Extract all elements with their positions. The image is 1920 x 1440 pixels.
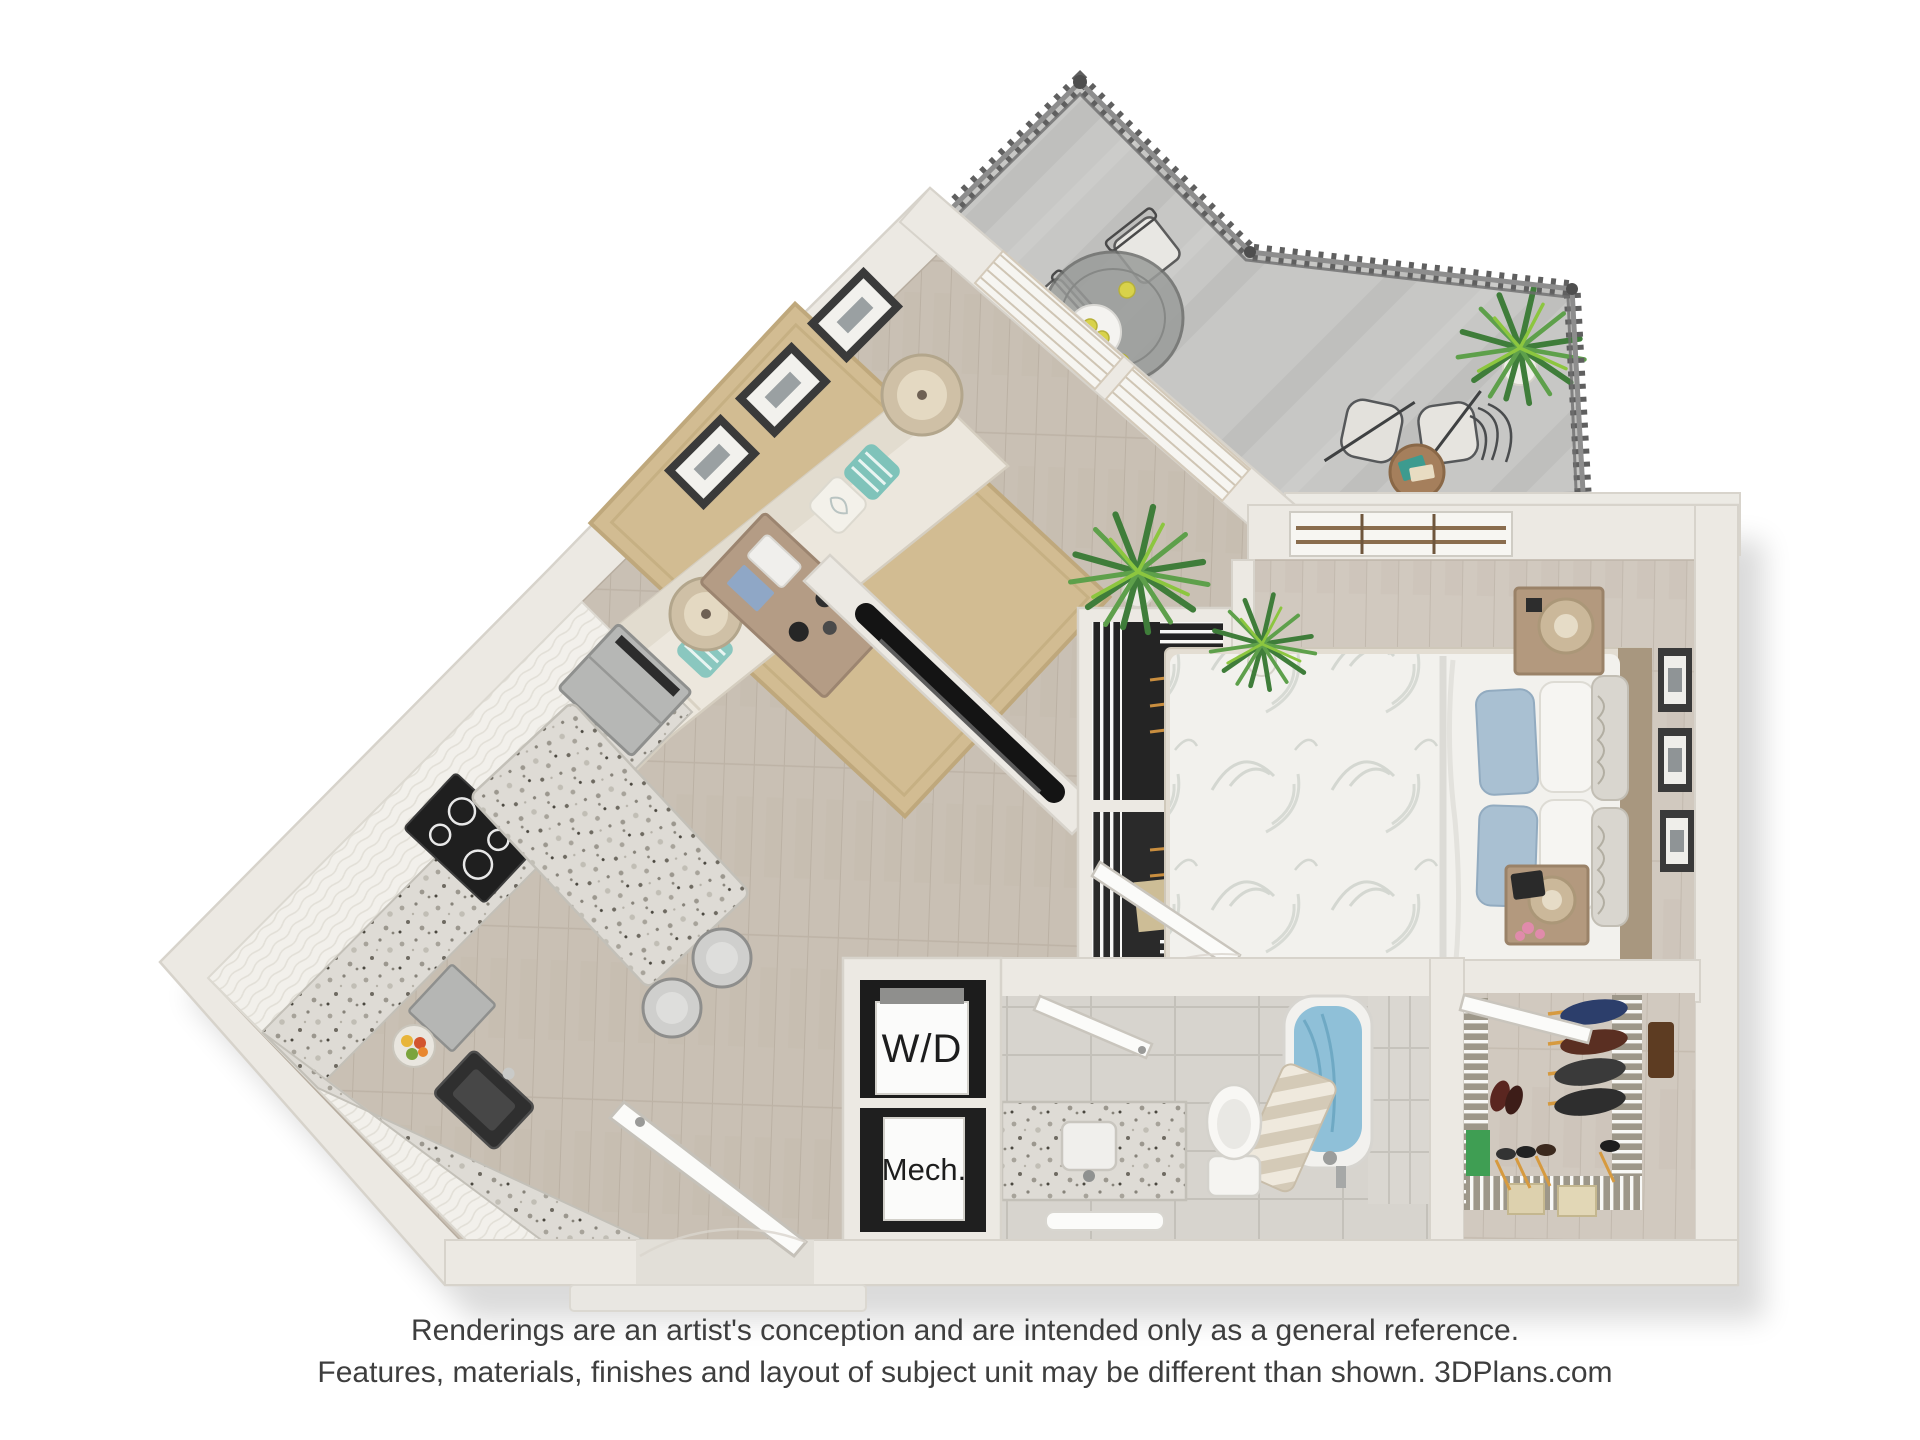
island-stool: [693, 929, 751, 987]
tablet: [1510, 870, 1545, 900]
mech-label: Mech.: [882, 1152, 966, 1187]
walk-in-closet: [1460, 993, 1695, 1242]
bedroom-window: [1290, 512, 1512, 556]
wd-label: W/D: [882, 1027, 963, 1071]
vanity-sink: [1062, 1122, 1116, 1170]
bathroom: [1000, 996, 1432, 1242]
disclaimer-line1: Renderings are an artist's conception an…: [411, 1314, 1519, 1347]
disclaimer-line2: Features, materials, finishes and layout…: [317, 1356, 1612, 1389]
toilet: [1207, 1085, 1261, 1196]
bedroom-wall-frames: [1658, 648, 1694, 872]
bath-closet-wall: [1430, 958, 1464, 1242]
nightstand: [1506, 866, 1588, 944]
floorplan-rendering: W/D Mech. Renderings are an artist's con…: [0, 0, 1920, 1440]
floor-lamp: [882, 355, 962, 435]
vanity-faucet: [1083, 1170, 1095, 1182]
fruit-bowl: [393, 1025, 435, 1067]
vanity: [1002, 1102, 1186, 1200]
right-wall: [1695, 505, 1738, 1285]
bed: [1165, 648, 1652, 1000]
disclaimer: Renderings are an artist's conception an…: [317, 1314, 1612, 1389]
floorplan-svg: W/D Mech. Renderings are an artist's con…: [0, 0, 1920, 1440]
utility-block: W/D Mech.: [843, 958, 1001, 1242]
towel: [1046, 1212, 1164, 1230]
bathroom-top-wall: [985, 958, 1445, 998]
tub-faucet: [1323, 1151, 1337, 1165]
lower-block: W/D Mech.: [843, 958, 1700, 1242]
entry-landing: [570, 1285, 866, 1311]
nightstand: [1515, 588, 1603, 674]
island-stool: [643, 979, 701, 1037]
